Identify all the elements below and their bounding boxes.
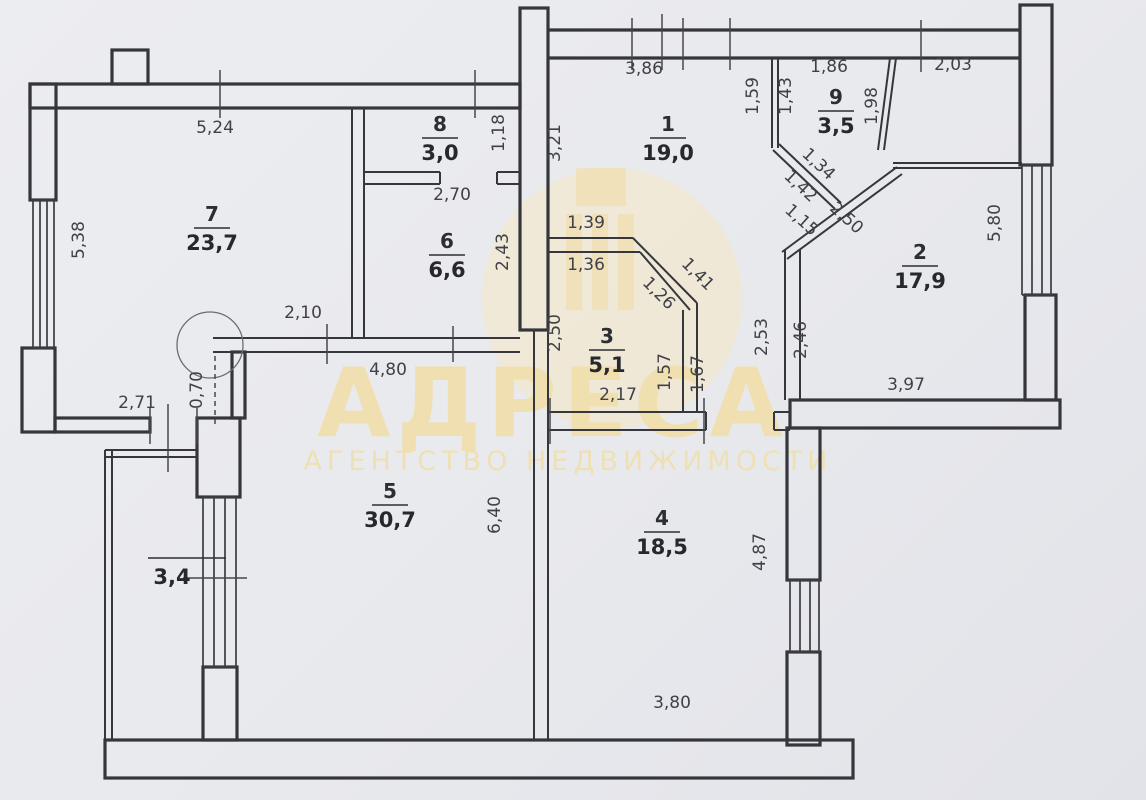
- wall-west-upper: [30, 84, 56, 200]
- dim-chamfer-short: 1,15: [781, 200, 823, 240]
- room-3-area: 5,1: [588, 353, 625, 377]
- room-6-area: 6,6: [428, 258, 465, 282]
- wall-room2-south: [790, 400, 1060, 428]
- room-1-number: 1: [661, 112, 675, 136]
- dim-room5-right: 6,40: [485, 496, 505, 534]
- dim-room7-left: 5,38: [69, 221, 89, 259]
- dim-room4-right: 4,87: [750, 533, 770, 571]
- room-4-area: 18,5: [636, 535, 688, 559]
- room-7-number: 7: [205, 202, 219, 226]
- window-room2-icon: [1022, 165, 1051, 295]
- watermark-pillar: [618, 214, 634, 310]
- room-2-area: 17,9: [894, 269, 946, 293]
- dim-room9-left-inner: 1,43: [776, 77, 796, 115]
- wall-balcony-lower: [203, 667, 237, 740]
- dim-room1-left: 3,21: [545, 124, 565, 162]
- room-4-number: 4: [655, 506, 669, 530]
- dim-niche-top: 2,03: [934, 55, 972, 75]
- dim-hall-wall: 2,53: [752, 318, 772, 356]
- dim-room8-right: 1,18: [489, 114, 509, 152]
- dim-room2-right: 5,80: [985, 204, 1005, 242]
- wall-bottom-band: [105, 740, 853, 778]
- wall-top-notch: [112, 50, 148, 84]
- dim-entry-wall: 2,71: [118, 393, 156, 413]
- dim-corner-step: 0,70: [187, 371, 207, 409]
- dim-room8-bottom: 2,70: [433, 185, 471, 205]
- dim-room3-right-inner: 1,57: [655, 353, 675, 391]
- tick-entrance: [632, 14, 921, 72]
- wall-room4-east-lower: [787, 652, 820, 745]
- room-9-area: 3,5: [817, 114, 854, 138]
- room-5-number: 5: [383, 479, 397, 503]
- room-6-number: 6: [440, 229, 454, 253]
- dim-room9-right: 1,98: [862, 87, 882, 125]
- window-room7-icon: [33, 200, 54, 348]
- wall-balcony-north: [105, 450, 197, 457]
- watermark-pediment: [576, 168, 626, 206]
- room-2-number: 2: [913, 240, 927, 264]
- window-room4-icon: [790, 580, 819, 652]
- tick-entry-door: [150, 404, 197, 472]
- dim-room2-left: 2,46: [791, 321, 811, 359]
- dim-room2-bottom: 3,97: [887, 375, 925, 395]
- floorplan-scan: АДРЕСА АГЕНТСТВО НЕДВИЖИМОСТИ: [0, 0, 1146, 800]
- dim-room6-right: 2,43: [493, 233, 513, 271]
- room-8-number: 8: [433, 112, 447, 136]
- room-7-area: 23,7: [186, 231, 238, 255]
- tick-top-wall: [220, 70, 475, 118]
- wall-room7-east: [352, 108, 364, 338]
- wall-entry: [55, 418, 150, 432]
- room-3-number: 3: [600, 324, 614, 348]
- dim-room9-left-outer: 1,59: [743, 77, 763, 115]
- wall-west-lower: [22, 348, 55, 432]
- wall-east-upper: [1020, 5, 1052, 165]
- dim-room9-top: 1,86: [810, 57, 848, 77]
- dim-room4-bottom: 3,80: [653, 693, 691, 713]
- room-1-area: 19,0: [642, 141, 694, 165]
- dim-room3-left: 2,50: [545, 314, 565, 352]
- wall-corner-block: [197, 418, 240, 497]
- wall-top-left: [30, 84, 520, 108]
- dim-room3-bottom: 2,17: [599, 385, 637, 405]
- floorplan-canvas: АДРЕСА АГЕНТСТВО НЕДВИЖИМОСТИ: [0, 0, 1146, 800]
- wall-niche-south: [893, 163, 1022, 168]
- dim-room5-top: 4,80: [369, 360, 407, 380]
- room-9-number: 9: [829, 85, 843, 109]
- dim-room3-top-inner: 1,36: [567, 255, 605, 275]
- wall-room8-south: [364, 172, 520, 184]
- dim-room1-top: 3,86: [625, 59, 663, 79]
- window-balcony-icon: [203, 497, 236, 667]
- wall-balcony-west: [105, 450, 112, 740]
- dim-room3-right-outer: 1,67: [688, 355, 708, 393]
- dim-room7-bottom: 2,10: [284, 303, 322, 323]
- wall-east-lower: [1025, 295, 1056, 400]
- watermark-subtitle: АГЕНТСТВО НЕДВИЖИМОСТИ: [303, 446, 832, 477]
- room-5-area: 30,7: [364, 508, 416, 532]
- door-swing-arc-icon: [177, 312, 243, 378]
- balcony-area: 3,4: [153, 565, 190, 589]
- wall-top-right: [548, 30, 1020, 58]
- room-8-area: 3,0: [421, 141, 458, 165]
- dim-room7-top: 5,24: [196, 118, 234, 138]
- dim-room3-top-outer: 1,39: [567, 213, 605, 233]
